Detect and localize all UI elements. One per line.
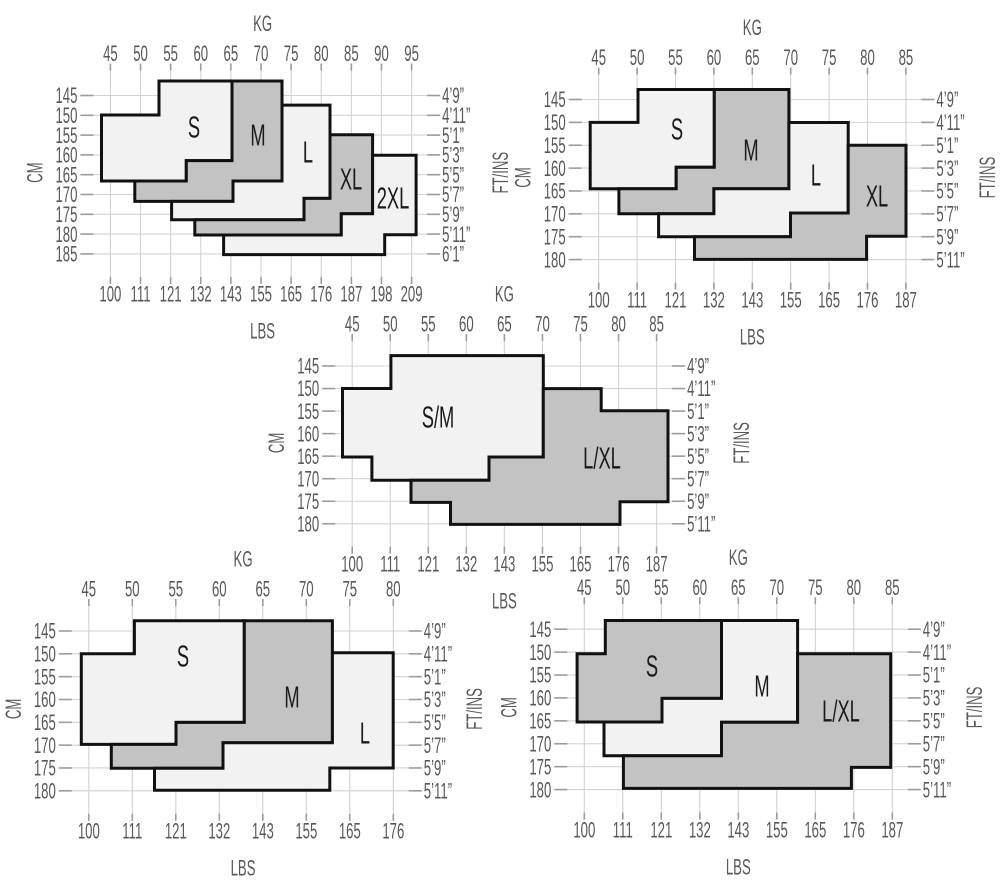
svg-text:180: 180 (34, 778, 56, 804)
svg-text:45: 45 (81, 576, 96, 602)
svg-text:4’11”: 4’11” (424, 641, 452, 667)
svg-text:132: 132 (703, 287, 725, 313)
svg-text:4’9”: 4’9” (424, 618, 446, 644)
svg-text:LBS: LBS (492, 588, 517, 614)
svg-text:55: 55 (168, 576, 183, 602)
svg-text:111: 111 (613, 817, 633, 843)
svg-text:FT/INS: FT/INS (728, 422, 754, 464)
svg-text:80: 80 (860, 44, 875, 70)
svg-text:LBS: LBS (726, 854, 751, 880)
svg-text:50: 50 (383, 311, 398, 337)
svg-text:2XL: 2XL (377, 182, 410, 216)
svg-text:165: 165 (34, 709, 56, 735)
svg-text:70: 70 (254, 40, 269, 66)
svg-text:60: 60 (692, 574, 707, 600)
svg-text:5’3”: 5’3” (923, 685, 945, 711)
svg-text:121: 121 (160, 281, 182, 307)
svg-text:M: M (284, 681, 299, 715)
svg-text:KG: KG (253, 10, 272, 36)
svg-text:187: 187 (646, 551, 668, 577)
svg-text:170: 170 (544, 201, 566, 227)
svg-text:KG: KG (234, 546, 253, 572)
svg-text:65: 65 (255, 576, 270, 602)
svg-text:5’11”: 5’11” (936, 247, 964, 273)
svg-text:60: 60 (459, 311, 474, 337)
svg-text:CM: CM (0, 699, 26, 719)
svg-text:55: 55 (163, 40, 178, 66)
svg-text:155: 155 (34, 664, 56, 690)
svg-text:80: 80 (386, 576, 401, 602)
svg-text:143: 143 (741, 287, 763, 313)
svg-text:70: 70 (769, 574, 784, 600)
svg-text:50: 50 (133, 40, 148, 66)
svg-text:55: 55 (421, 311, 436, 337)
svg-text:FT/INS: FT/INS (961, 687, 987, 729)
svg-text:175: 175 (529, 754, 551, 780)
svg-text:L: L (303, 136, 313, 170)
svg-text:CM: CM (510, 167, 536, 187)
svg-text:170: 170 (529, 731, 551, 757)
svg-text:111: 111 (627, 287, 647, 313)
svg-text:4’9”: 4’9” (923, 616, 945, 642)
svg-text:160: 160 (34, 686, 56, 712)
svg-text:80: 80 (611, 311, 626, 337)
svg-text:175: 175 (34, 755, 56, 781)
svg-text:5’1”: 5’1” (936, 132, 958, 158)
svg-text:155: 155 (544, 132, 566, 158)
svg-text:150: 150 (544, 109, 566, 135)
svg-text:CM: CM (22, 162, 48, 182)
svg-text:5’1”: 5’1” (424, 664, 446, 690)
svg-text:111: 111 (122, 818, 142, 844)
svg-text:S: S (671, 113, 683, 147)
svg-text:KG: KG (729, 544, 748, 570)
svg-text:100: 100 (588, 287, 610, 313)
svg-text:132: 132 (455, 551, 477, 577)
svg-text:FT/INS: FT/INS (974, 157, 1000, 199)
svg-text:185: 185 (55, 241, 77, 267)
svg-text:L/XL: L/XL (583, 442, 621, 476)
svg-text:176: 176 (843, 817, 865, 843)
svg-text:90: 90 (374, 40, 389, 66)
svg-text:165: 165 (570, 551, 592, 577)
svg-text:175: 175 (544, 224, 566, 250)
svg-text:5’11”: 5’11” (687, 511, 715, 537)
svg-text:187: 187 (881, 817, 903, 843)
svg-text:155: 155 (295, 818, 317, 844)
svg-text:4’11”: 4’11” (923, 639, 951, 665)
svg-text:45: 45 (345, 311, 360, 337)
svg-text:165: 165 (529, 708, 551, 734)
svg-text:XL: XL (866, 180, 888, 214)
svg-text:LBS: LBS (250, 318, 275, 344)
svg-text:165: 165 (544, 178, 566, 204)
svg-text:165: 165 (339, 818, 361, 844)
svg-text:FT/INS: FT/INS (461, 688, 487, 730)
svg-text:155: 155 (529, 662, 551, 688)
svg-text:145: 145 (544, 86, 566, 112)
svg-text:111: 111 (380, 551, 400, 577)
svg-text:M: M (743, 134, 758, 168)
svg-text:5’11”: 5’11” (923, 777, 951, 803)
svg-text:75: 75 (573, 311, 588, 337)
svg-text:176: 176 (608, 551, 630, 577)
svg-text:100: 100 (99, 281, 121, 307)
svg-text:70: 70 (783, 44, 798, 70)
svg-text:100: 100 (78, 818, 100, 844)
svg-text:LBS: LBS (231, 855, 256, 881)
svg-text:5’3”: 5’3” (936, 155, 958, 181)
svg-text:XL: XL (340, 163, 362, 197)
svg-text:5’7”: 5’7” (923, 731, 945, 757)
svg-text:65: 65 (745, 44, 760, 70)
svg-text:100: 100 (341, 551, 363, 577)
svg-text:85: 85 (885, 574, 900, 600)
svg-text:M: M (754, 670, 769, 704)
svg-text:132: 132 (190, 281, 212, 307)
svg-text:180: 180 (544, 247, 566, 273)
svg-text:176: 176 (310, 281, 332, 307)
svg-text:55: 55 (654, 574, 669, 600)
svg-text:60: 60 (193, 40, 208, 66)
svg-text:121: 121 (650, 817, 672, 843)
svg-text:121: 121 (165, 818, 187, 844)
svg-text:143: 143 (493, 551, 515, 577)
svg-text:145: 145 (34, 618, 56, 644)
svg-text:198: 198 (371, 281, 393, 307)
svg-text:143: 143 (252, 818, 274, 844)
svg-text:165: 165 (804, 817, 826, 843)
svg-text:143: 143 (727, 817, 749, 843)
svg-text:132: 132 (689, 817, 711, 843)
svg-text:121: 121 (665, 287, 687, 313)
svg-text:S: S (646, 650, 658, 684)
svg-text:150: 150 (529, 639, 551, 665)
svg-text:45: 45 (577, 574, 592, 600)
svg-text:4’11”: 4’11” (936, 109, 964, 135)
svg-text:6’1”: 6’1” (442, 241, 464, 267)
svg-text:95: 95 (404, 40, 419, 66)
svg-text:5’5”: 5’5” (936, 178, 958, 204)
svg-text:5’11”: 5’11” (424, 778, 452, 804)
svg-text:165: 165 (280, 281, 302, 307)
svg-text:155: 155 (766, 817, 788, 843)
svg-text:5’5”: 5’5” (424, 709, 446, 735)
svg-text:45: 45 (103, 40, 118, 66)
svg-text:CM: CM (496, 697, 522, 717)
svg-text:176: 176 (857, 287, 879, 313)
svg-text:60: 60 (212, 576, 227, 602)
svg-text:50: 50 (125, 576, 140, 602)
svg-text:80: 80 (846, 574, 861, 600)
svg-text:L: L (360, 717, 370, 751)
svg-text:111: 111 (131, 281, 151, 307)
svg-text:160: 160 (544, 155, 566, 181)
svg-text:5’7”: 5’7” (936, 201, 958, 227)
svg-text:85: 85 (649, 311, 664, 337)
svg-text:5’3”: 5’3” (424, 686, 446, 712)
svg-text:75: 75 (342, 576, 357, 602)
svg-text:50: 50 (615, 574, 630, 600)
svg-text:50: 50 (630, 44, 645, 70)
svg-text:187: 187 (895, 287, 917, 313)
svg-text:LBS: LBS (740, 324, 765, 350)
svg-text:65: 65 (497, 311, 512, 337)
svg-text:70: 70 (299, 576, 314, 602)
svg-text:160: 160 (529, 685, 551, 711)
svg-text:KG: KG (495, 281, 514, 307)
svg-text:4’9”: 4’9” (936, 86, 958, 112)
svg-text:209: 209 (401, 281, 423, 307)
svg-text:5’9”: 5’9” (424, 755, 446, 781)
svg-text:KG: KG (743, 14, 762, 40)
svg-text:L: L (811, 159, 821, 193)
svg-text:150: 150 (34, 641, 56, 667)
svg-text:180: 180 (297, 511, 319, 537)
svg-text:121: 121 (417, 551, 439, 577)
svg-text:L/XL: L/XL (822, 695, 860, 729)
svg-text:143: 143 (220, 281, 242, 307)
svg-text:5’9”: 5’9” (923, 754, 945, 780)
svg-text:65: 65 (224, 40, 239, 66)
svg-text:60: 60 (707, 44, 722, 70)
svg-text:80: 80 (314, 40, 329, 66)
svg-text:75: 75 (822, 44, 837, 70)
svg-text:145: 145 (529, 616, 551, 642)
svg-text:5’9”: 5’9” (936, 224, 958, 250)
svg-text:45: 45 (591, 44, 606, 70)
svg-text:S: S (188, 111, 200, 145)
svg-text:55: 55 (668, 44, 683, 70)
svg-text:75: 75 (808, 574, 823, 600)
svg-text:100: 100 (573, 817, 595, 843)
svg-text:180: 180 (529, 777, 551, 803)
svg-text:S: S (177, 640, 189, 674)
svg-text:85: 85 (344, 40, 359, 66)
svg-text:65: 65 (731, 574, 746, 600)
svg-text:85: 85 (899, 44, 914, 70)
svg-text:5’1”: 5’1” (923, 662, 945, 688)
svg-text:155: 155 (531, 551, 553, 577)
svg-text:176: 176 (382, 818, 404, 844)
svg-text:70: 70 (535, 311, 550, 337)
svg-text:75: 75 (284, 40, 299, 66)
svg-text:165: 165 (818, 287, 840, 313)
svg-text:132: 132 (208, 818, 230, 844)
svg-text:5’7”: 5’7” (424, 732, 446, 758)
svg-text:5’5”: 5’5” (923, 708, 945, 734)
svg-text:155: 155 (250, 281, 272, 307)
svg-text:S/M: S/M (422, 401, 455, 435)
svg-text:M: M (250, 119, 265, 153)
svg-text:CM: CM (263, 433, 289, 453)
svg-text:187: 187 (340, 281, 362, 307)
svg-text:155: 155 (780, 287, 802, 313)
svg-text:170: 170 (34, 732, 56, 758)
